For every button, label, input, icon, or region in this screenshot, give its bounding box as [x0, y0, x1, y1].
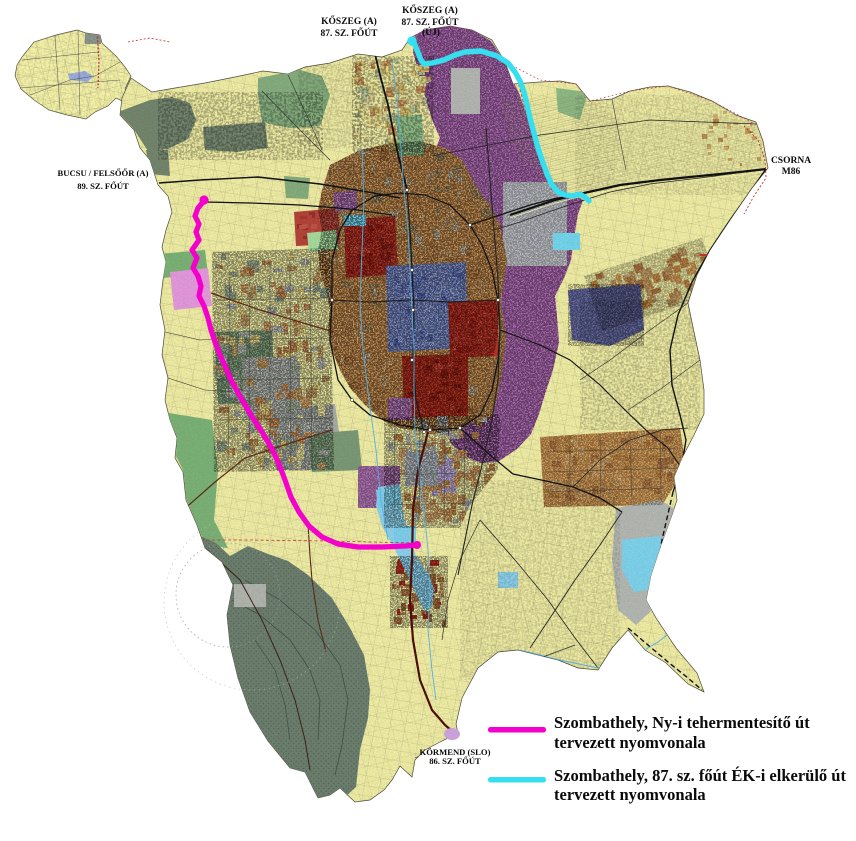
svg-text:tervezett nyomvonala: tervezett nyomvonala [554, 733, 706, 752]
svg-text:M86: M86 [782, 167, 801, 177]
svg-text:89. SZ. FŐÚT: 89. SZ. FŐÚT [77, 181, 129, 191]
svg-text:Szombathely, Ny-i tehermentesí: Szombathely, Ny-i tehermentesítő út [554, 713, 810, 732]
svg-text:KŐSZEG (A): KŐSZEG (A) [321, 15, 377, 27]
svg-text:Szombathely, 87. sz. főút ÉK-i: Szombathely, 87. sz. főút ÉK-i elkerülő … [554, 766, 846, 785]
svg-text:tervezett nyomvonala: tervezett nyomvonala [554, 785, 706, 804]
svg-text:86. SZ. FŐÚT: 86. SZ. FŐÚT [429, 756, 481, 766]
svg-text:87. SZ. FŐÚT: 87. SZ. FŐÚT [320, 27, 378, 39]
svg-text:(ÚJ): (ÚJ) [422, 26, 440, 38]
svg-text:87. SZ. FŐÚT: 87. SZ. FŐÚT [401, 16, 459, 28]
svg-text:CSORNA: CSORNA [771, 156, 811, 166]
svg-text:KŐSZEG (A): KŐSZEG (A) [402, 4, 458, 16]
svg-text:BUCSU / FELSŐŐR (A): BUCSU / FELSŐŐR (A) [58, 168, 149, 178]
